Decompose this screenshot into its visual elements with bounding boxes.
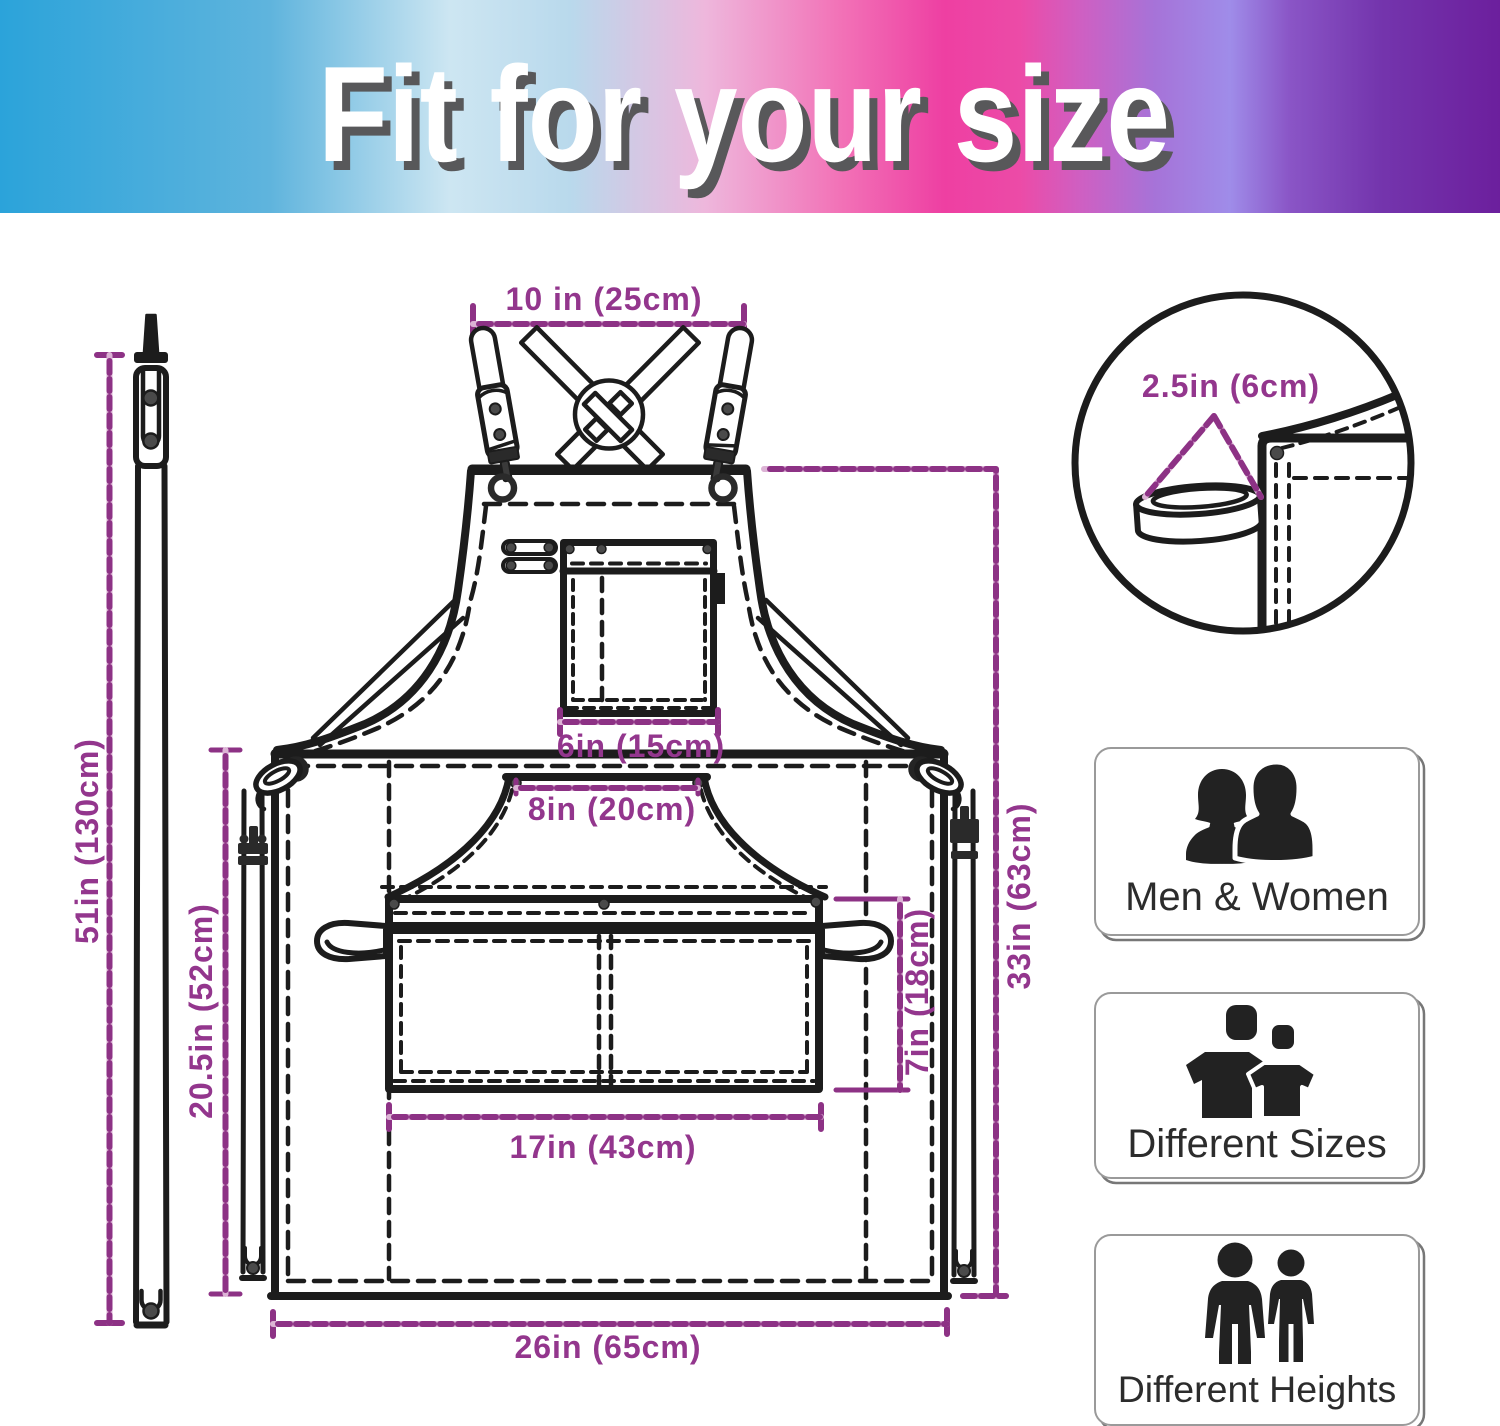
svg-text:Different Sizes: Different Sizes [1127,1122,1386,1166]
svg-text:2.5in (6cm): 2.5in (6cm) [1142,368,1320,404]
svg-text:7in (18cm): 7in (18cm) [899,908,935,1076]
svg-text:20.5in (52cm): 20.5in (52cm) [183,903,219,1119]
svg-text:6in (15cm): 6in (15cm) [557,728,725,764]
svg-text:26in (65cm): 26in (65cm) [514,1329,701,1365]
svg-text:Men & Women: Men & Women [1125,875,1389,919]
svg-text:17in (43cm): 17in (43cm) [509,1129,696,1165]
svg-text:Fit for your size: Fit for your size [318,38,1170,190]
svg-text:33in (63cm): 33in (63cm) [1001,802,1037,989]
svg-text:10 in (25cm): 10 in (25cm) [506,281,703,317]
svg-text:8in (20cm): 8in (20cm) [528,791,696,827]
svg-text:51in (130cm): 51in (130cm) [69,738,105,944]
svg-text:Different Heights: Different Heights [1118,1368,1397,1410]
